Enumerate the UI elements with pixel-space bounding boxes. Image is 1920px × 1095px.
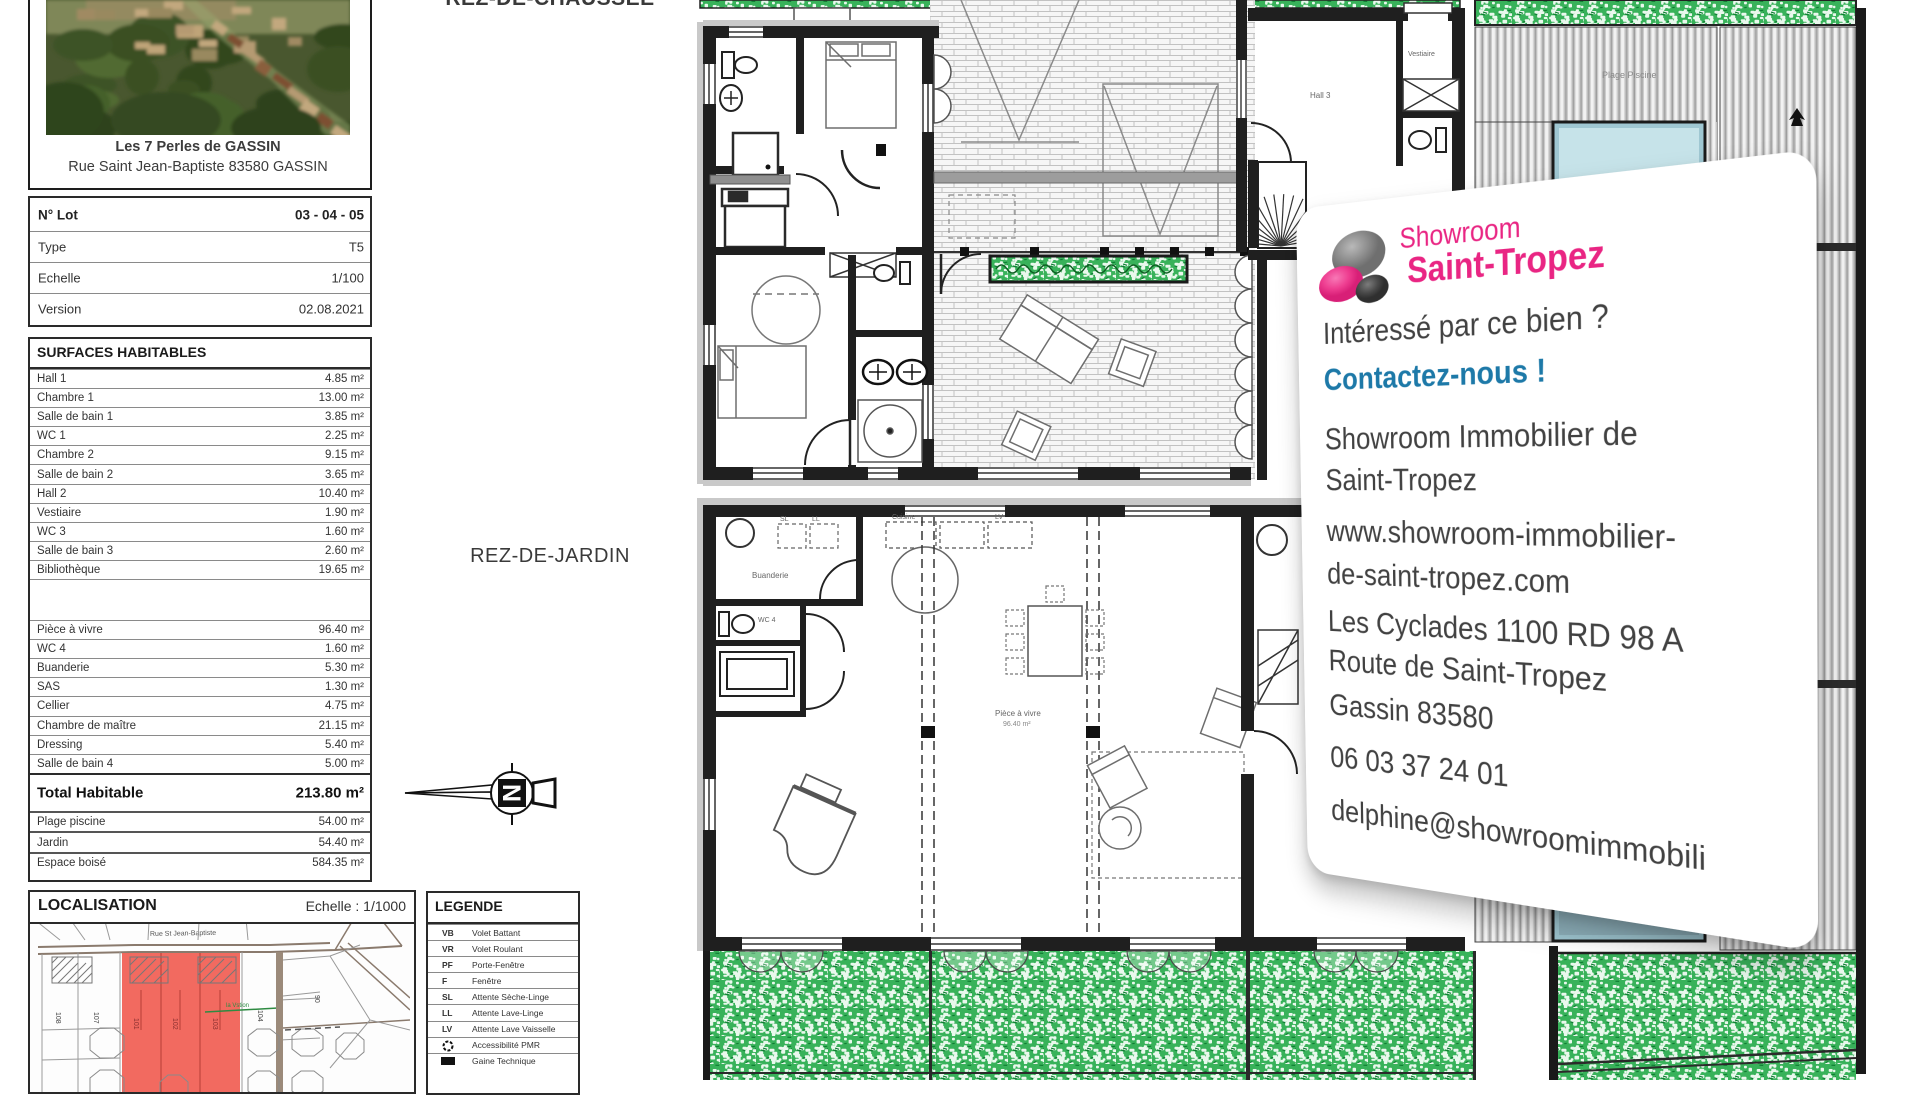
svg-text:la Vstion: la Vstion [226, 1003, 249, 1009]
svg-text:107: 107 [92, 1012, 99, 1024]
svg-text:90: 90 [313, 995, 320, 1003]
svg-text:Plage Piscine: Plage Piscine [1602, 70, 1657, 80]
svg-text:N: N [497, 784, 525, 802]
svg-text:102: 102 [171, 1018, 178, 1030]
svg-text:101: 101 [132, 1018, 139, 1030]
svg-text:SL: SL [780, 516, 789, 523]
svg-text:LV: LV [995, 514, 1003, 521]
svg-text:Cuisine: Cuisine [892, 514, 915, 521]
svg-text:Rue St Jean-Baptiste: Rue St Jean-Baptiste [150, 930, 216, 938]
svg-text:Vestiaire: Vestiaire [1408, 51, 1435, 58]
svg-text:108: 108 [54, 1012, 61, 1024]
svg-text:WC 4: WC 4 [758, 617, 776, 624]
svg-text:103: 103 [211, 1018, 218, 1030]
svg-text:LL: LL [812, 516, 820, 523]
svg-text:Pièce à vivre: Pièce à vivre [995, 709, 1041, 718]
svg-text:Buanderie: Buanderie [752, 571, 789, 580]
svg-text:96.40 m²: 96.40 m² [1003, 721, 1031, 728]
svg-text:104: 104 [256, 1010, 263, 1022]
svg-text:Hall 3: Hall 3 [1310, 91, 1331, 100]
